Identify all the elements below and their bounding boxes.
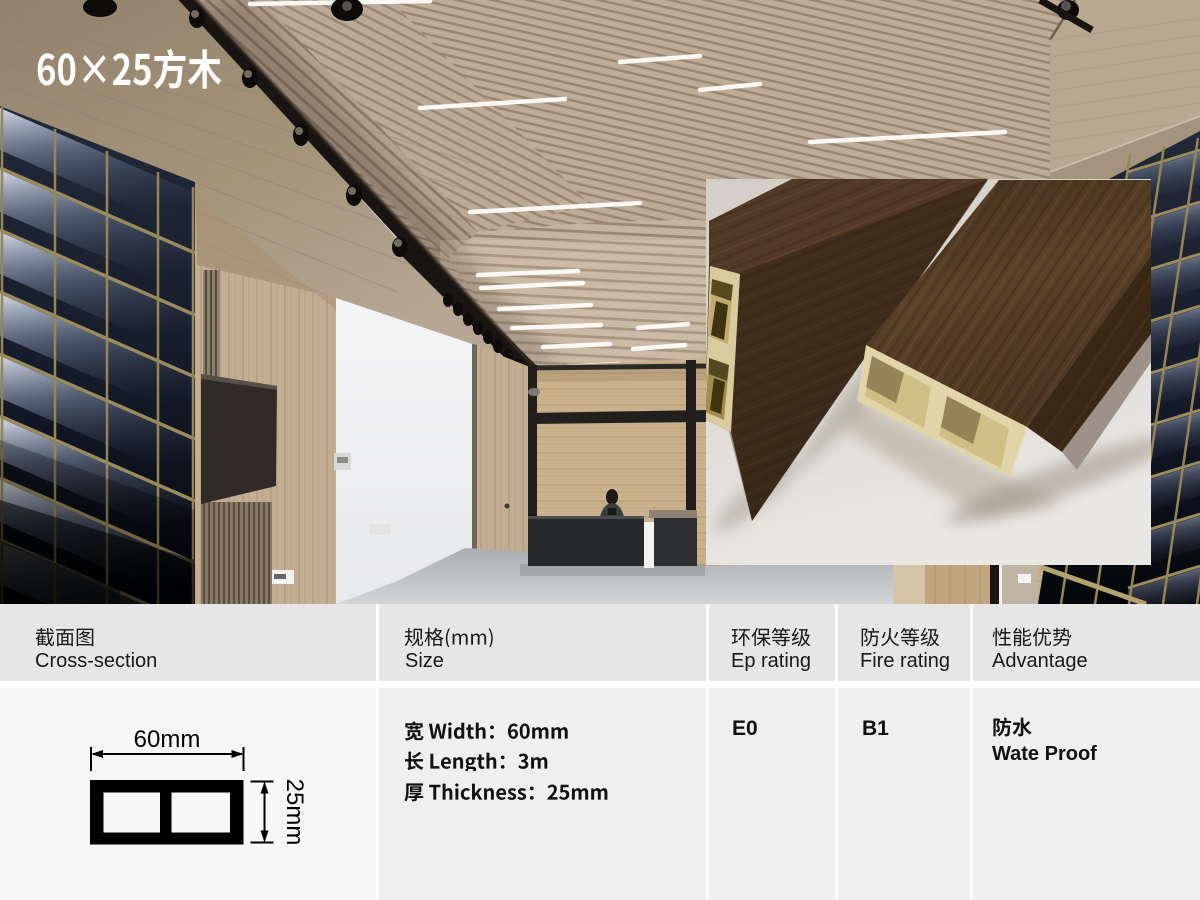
svg-text:60mm: 60mm — [134, 726, 201, 753]
svg-text:25mm: 25mm — [281, 779, 308, 846]
